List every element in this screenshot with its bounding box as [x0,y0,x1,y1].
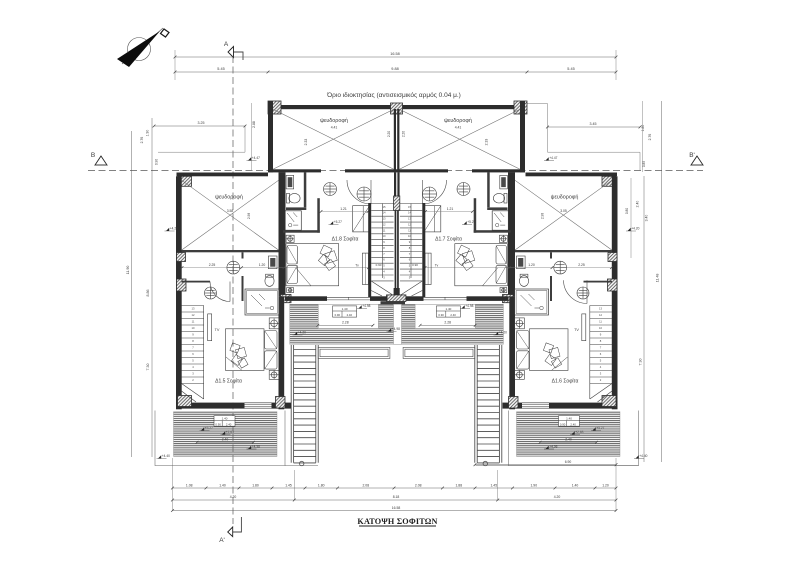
svg-text:2.40: 2.40 [565,438,572,442]
svg-text:4.41: 4.41 [455,126,462,130]
svg-text:13: 13 [192,306,195,310]
svg-text:2.98: 2.98 [247,213,251,219]
svg-text:5.45: 5.45 [567,67,574,71]
svg-text:2.20: 2.20 [402,131,406,137]
svg-text:11: 11 [408,228,411,232]
svg-text:3.58: 3.58 [227,209,234,213]
svg-text:Δ1.5 Σοφίτα: Δ1.5 Σοφίτα [215,379,242,385]
svg-text:+5.27: +5.27 [596,426,604,430]
svg-text:0.90: 0.90 [215,422,221,426]
svg-text:+2.63: +2.63 [226,430,234,434]
svg-text:1.40: 1.40 [566,417,572,421]
svg-text:Bʹ: Bʹ [689,151,695,159]
svg-text:2.28: 2.28 [444,320,451,324]
svg-text:12: 12 [408,222,411,226]
svg-text:1.40: 1.40 [219,483,226,487]
svg-text:1.40: 1.40 [572,483,579,487]
svg-text:1.90: 1.90 [146,130,150,137]
svg-text:13: 13 [383,217,386,221]
svg-text:Tv: Tv [435,264,439,268]
svg-text:5.45: 5.45 [217,67,224,71]
svg-text:11.48: 11.48 [656,274,660,283]
svg-text:+4.98: +4.98 [465,304,473,308]
svg-text:Tv: Tv [355,264,359,268]
svg-text:2.28: 2.28 [342,320,349,324]
svg-text:16.58: 16.58 [390,52,400,56]
svg-text:+4.47: +4.47 [549,156,557,160]
svg-text:15: 15 [383,205,386,209]
svg-text:6.90: 6.90 [565,460,572,464]
svg-text:ψευδοροφή: ψευδοροφή [320,117,348,124]
svg-text:4.20: 4.20 [230,495,237,499]
svg-text:1.90: 1.90 [530,483,537,487]
svg-text:3.40: 3.40 [645,215,649,222]
svg-text:0.90: 0.90 [155,159,159,165]
svg-text:1.21: 1.21 [340,207,347,211]
svg-text:3.25: 3.25 [198,121,205,125]
svg-text:9.88: 9.88 [391,67,398,71]
svg-text:1.45: 1.45 [285,483,292,487]
svg-text:1.08: 1.08 [186,483,193,487]
svg-text:7.30: 7.30 [146,364,150,371]
svg-text:+4.98: +4.98 [549,445,557,449]
svg-text:+5.27: +5.27 [467,220,475,224]
svg-text:+4.98: +4.98 [392,327,400,331]
svg-text:Όριο ιδιοκτησίας (αντισεισμικό: Όριο ιδιοκτησίας (αντισεισμικός αρμός 0.… [326,91,461,99]
svg-text:Δ1.7 Σοφίτα: Δ1.7 Σοφίτα [435,237,462,243]
svg-text:0.90: 0.90 [335,313,341,317]
svg-text:+4.20: +4.20 [631,227,639,231]
svg-text:Δ1.8 Σοφίτα: Δ1.8 Σοφίτα [332,237,359,243]
svg-text:1.80: 1.80 [252,483,259,487]
svg-text:1.88: 1.88 [455,483,462,487]
svg-text:8.18: 8.18 [393,495,400,499]
svg-text:2.20: 2.20 [387,131,391,137]
svg-text:2.40: 2.40 [450,313,456,317]
svg-text:4.41: 4.41 [331,126,338,130]
svg-text:13: 13 [408,217,411,221]
svg-text:+4.40: +4.40 [639,454,647,458]
svg-text:12: 12 [599,313,602,317]
svg-text:1.20: 1.20 [602,483,609,487]
svg-text:Δ1.6 Σοφίτα: Δ1.6 Σοφίτα [552,379,579,385]
svg-text:B: B [91,152,95,159]
svg-text:0.85: 0.85 [642,161,646,167]
svg-text:2.76: 2.76 [648,134,652,141]
svg-text:2.40: 2.40 [226,422,232,426]
svg-text:+4.40: +4.40 [162,454,170,458]
svg-text:12: 12 [383,222,386,226]
svg-text:0.80: 0.80 [625,208,629,214]
svg-text:1.80: 1.80 [318,483,325,487]
svg-text:+2.63: +2.63 [575,430,583,434]
svg-text:2.33: 2.33 [304,139,308,146]
svg-text:1.20: 1.20 [528,263,535,267]
svg-text:+5.27: +5.27 [334,220,342,224]
svg-text:+4.20: +4.20 [170,227,178,231]
svg-text:16.58: 16.58 [392,506,401,510]
svg-text:11: 11 [383,228,386,232]
svg-text:TV: TV [215,328,220,332]
svg-text:0.90: 0.90 [560,422,566,426]
svg-text:2.76: 2.76 [140,137,144,144]
svg-text:1.40: 1.40 [445,307,451,311]
svg-text:ΚΑΤΟΨΗ ΣΟΦΙΤΩΝ: ΚΑΤΟΨΗ ΣΟΦΙΤΩΝ [357,517,437,526]
svg-text:TV: TV [574,328,579,332]
svg-text:2.40: 2.40 [636,201,640,208]
svg-text:Aʹ: Aʹ [219,536,225,544]
svg-text:2.25: 2.25 [209,263,216,267]
svg-text:10: 10 [599,326,602,330]
svg-text:1.21: 1.21 [447,207,454,211]
svg-text:+4.98: +4.98 [252,445,260,449]
svg-text:10: 10 [408,234,411,238]
svg-text:ψευδοροφή: ψευδοροφή [444,117,472,124]
svg-text:+4.98: +4.98 [362,304,370,308]
svg-text:2.08: 2.08 [362,483,369,487]
svg-text:11: 11 [599,319,602,323]
svg-text:11.90: 11.90 [126,266,130,275]
svg-text:1.20: 1.20 [259,263,266,267]
svg-text:13: 13 [599,306,602,310]
svg-text:3.05: 3.05 [560,209,567,213]
svg-text:+4.47: +4.47 [252,156,260,160]
svg-text:12: 12 [192,313,195,317]
svg-text:2.40: 2.40 [347,313,353,317]
svg-text:10: 10 [383,234,386,238]
svg-text:2.98: 2.98 [541,213,545,219]
svg-text:3.45: 3.45 [590,122,597,126]
svg-text:A: A [224,41,229,48]
svg-text:ψευδοροφή: ψευδοροφή [551,194,579,201]
svg-text:+5.27: +5.27 [205,426,213,430]
svg-text:1.40: 1.40 [342,307,348,311]
svg-text:+4.20: +4.20 [298,331,306,335]
svg-text:11: 11 [192,319,195,323]
svg-text:10: 10 [192,326,195,330]
svg-text:+4.20: +4.20 [499,331,507,335]
svg-text:2.88: 2.88 [252,121,256,128]
svg-text:1.80: 1.80 [641,125,645,132]
svg-text:7.30: 7.30 [639,359,643,366]
svg-text:14: 14 [383,211,386,215]
svg-text:8.86: 8.86 [146,290,150,297]
svg-text:2.25: 2.25 [578,263,585,267]
svg-text:ψευδοροφή: ψευδοροφή [215,194,243,201]
svg-text:1.40: 1.40 [222,417,228,421]
svg-text:2.33: 2.33 [485,139,489,146]
svg-text:2.40: 2.40 [222,438,229,442]
svg-text:15: 15 [408,205,411,209]
svg-text:14: 14 [408,211,411,215]
svg-text:1.45: 1.45 [490,483,497,487]
svg-text:0.90: 0.90 [438,313,444,317]
svg-text:2.08: 2.08 [415,483,422,487]
svg-text:4.20: 4.20 [554,495,561,499]
svg-text:2.40: 2.40 [570,422,576,426]
